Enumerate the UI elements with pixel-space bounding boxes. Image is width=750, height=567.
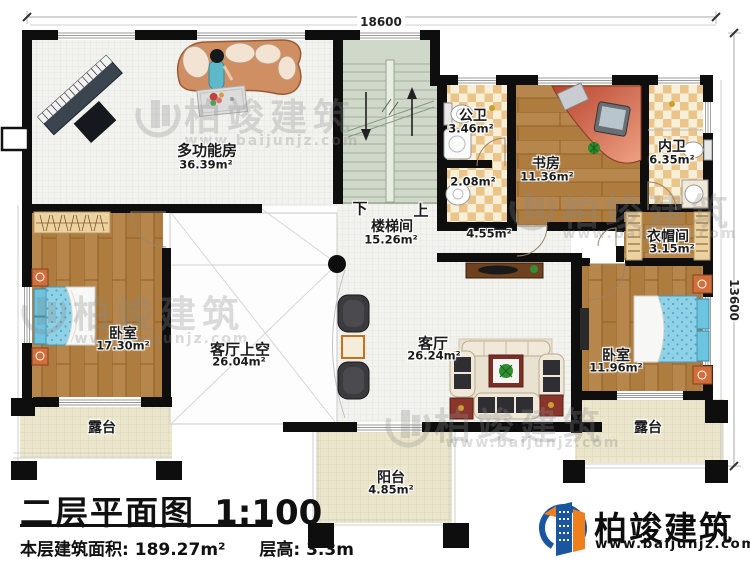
dimension-height: 13600: [728, 276, 740, 324]
stats-height-value: 3.3m: [306, 540, 354, 560]
dimension-width: 18600: [357, 16, 405, 28]
void-edge-chairs: [338, 295, 369, 399]
stats-height-label: 层高:: [259, 540, 300, 560]
area-study: 11.36m²: [520, 171, 573, 183]
stats-area-value: 189.27m²: [135, 540, 226, 560]
stair-down-label: 下: [352, 202, 367, 217]
staircase: [343, 36, 437, 204]
watermark-brand-name: 柏竣建筑: [73, 284, 245, 338]
tv-bedroom: [580, 308, 589, 350]
area-ensuite-bath: 6.35m²: [649, 154, 694, 166]
label-terrace-right: 露台: [634, 421, 662, 435]
area-bedroom-left: 17.30m²: [96, 340, 149, 352]
title-underline: [20, 524, 272, 527]
area-hallway: 4.55m²: [466, 228, 511, 240]
label-multifunction-room: 多功能房: [177, 144, 237, 159]
area-multifunction-room: 36.39m²: [179, 159, 232, 171]
area-stairwell: 15.26m²: [364, 234, 417, 246]
brand-logo-icon: [534, 499, 591, 556]
area-cloakroom: 3.15m²: [649, 243, 694, 255]
chimney-box: [2, 128, 28, 150]
label-terrace-left: 露台: [88, 421, 116, 435]
area-washbasin: 2.08m²: [450, 176, 495, 188]
area-bedroom-right: 11.96m²: [589, 362, 642, 374]
stats-area-label: 本层建筑面积:: [20, 540, 129, 560]
drawing-scale: 1:100: [214, 493, 322, 533]
stair-up-label: 上: [413, 204, 428, 219]
floor-plan-page: 柏竣建筑 www.baijunjz.com 柏竣建筑 www.baijunjz.…: [0, 0, 750, 567]
area-living-room: 26.24m²: [407, 350, 460, 362]
area-balcony: 4.85m²: [368, 484, 413, 496]
area-living-void: 26.04m²: [212, 356, 265, 368]
watermark-brand-url: www.baijunjz.com: [446, 435, 621, 451]
floor-stats: 本层建筑面积: 189.27m² 层高: 3.3m: [20, 535, 354, 560]
area-public-bath: 3.46m²: [448, 123, 493, 135]
tv-console: [466, 263, 543, 278]
brand-url: www.baijunjz.com: [595, 536, 750, 552]
